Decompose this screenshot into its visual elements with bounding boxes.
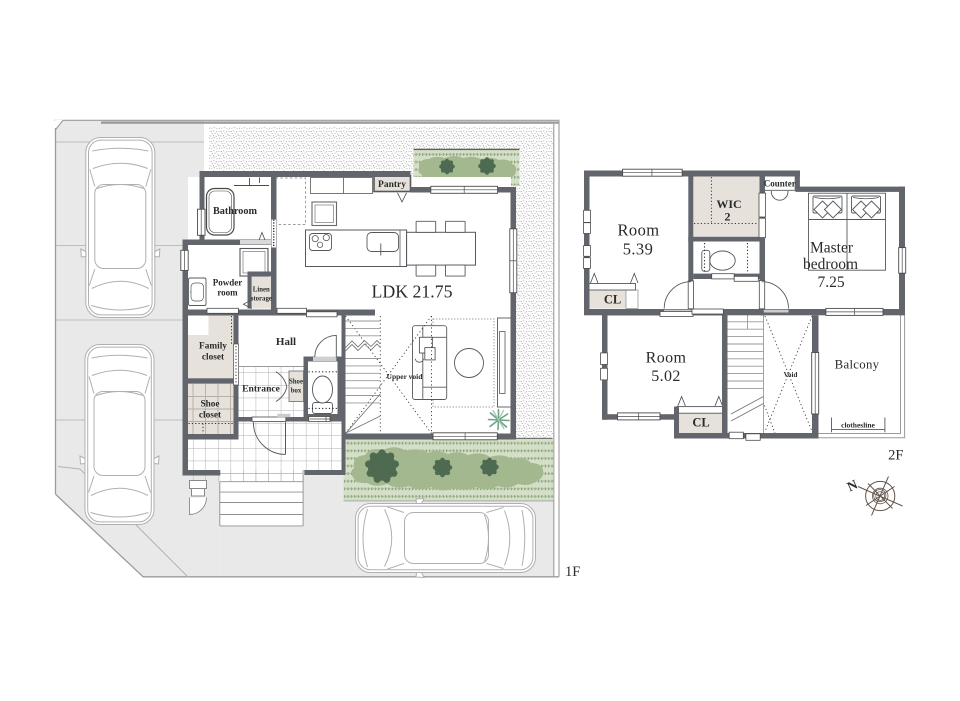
svg-text:Balcony: Balcony (835, 358, 880, 372)
svg-text:Hall: Hall (276, 336, 296, 348)
svg-text:Upper void: Upper void (387, 372, 424, 381)
svg-text:Counter: Counter (764, 179, 796, 189)
svg-text:Master: Master (810, 240, 854, 257)
svg-text:1F: 1F (565, 564, 580, 580)
svg-text:Entrance: Entrance (242, 384, 281, 395)
svg-text:Room: Room (618, 221, 660, 240)
svg-text:2: 2 (725, 210, 731, 224)
svg-text:Powder: Powder (213, 278, 243, 288)
svg-text:5.02: 5.02 (651, 368, 681, 385)
svg-text:CL: CL (604, 293, 621, 307)
svg-text:7.25: 7.25 (817, 274, 844, 291)
svg-text:5.39: 5.39 (623, 240, 653, 259)
svg-text:Shoe: Shoe (289, 379, 303, 386)
svg-text:Shoe: Shoe (200, 400, 219, 410)
svg-text:box: box (291, 388, 302, 395)
svg-text:closet: closet (199, 411, 222, 421)
svg-text:storage: storage (251, 296, 272, 303)
svg-text:Room: Room (646, 350, 687, 367)
svg-text:Pantry: Pantry (378, 180, 406, 190)
svg-text:clothesline: clothesline (841, 421, 875, 430)
svg-text:LDK 21.75: LDK 21.75 (372, 281, 453, 301)
svg-text:CL: CL (692, 416, 709, 430)
svg-text:Void: Void (784, 371, 798, 379)
svg-text:Linen: Linen (253, 287, 270, 294)
svg-text:closet: closet (202, 353, 225, 363)
svg-text:room: room (217, 288, 238, 298)
svg-text:bedroom: bedroom (803, 256, 858, 273)
svg-text:Bathroom: Bathroom (213, 206, 257, 217)
svg-text:Family: Family (199, 342, 227, 352)
svg-text:2F: 2F (888, 448, 903, 464)
